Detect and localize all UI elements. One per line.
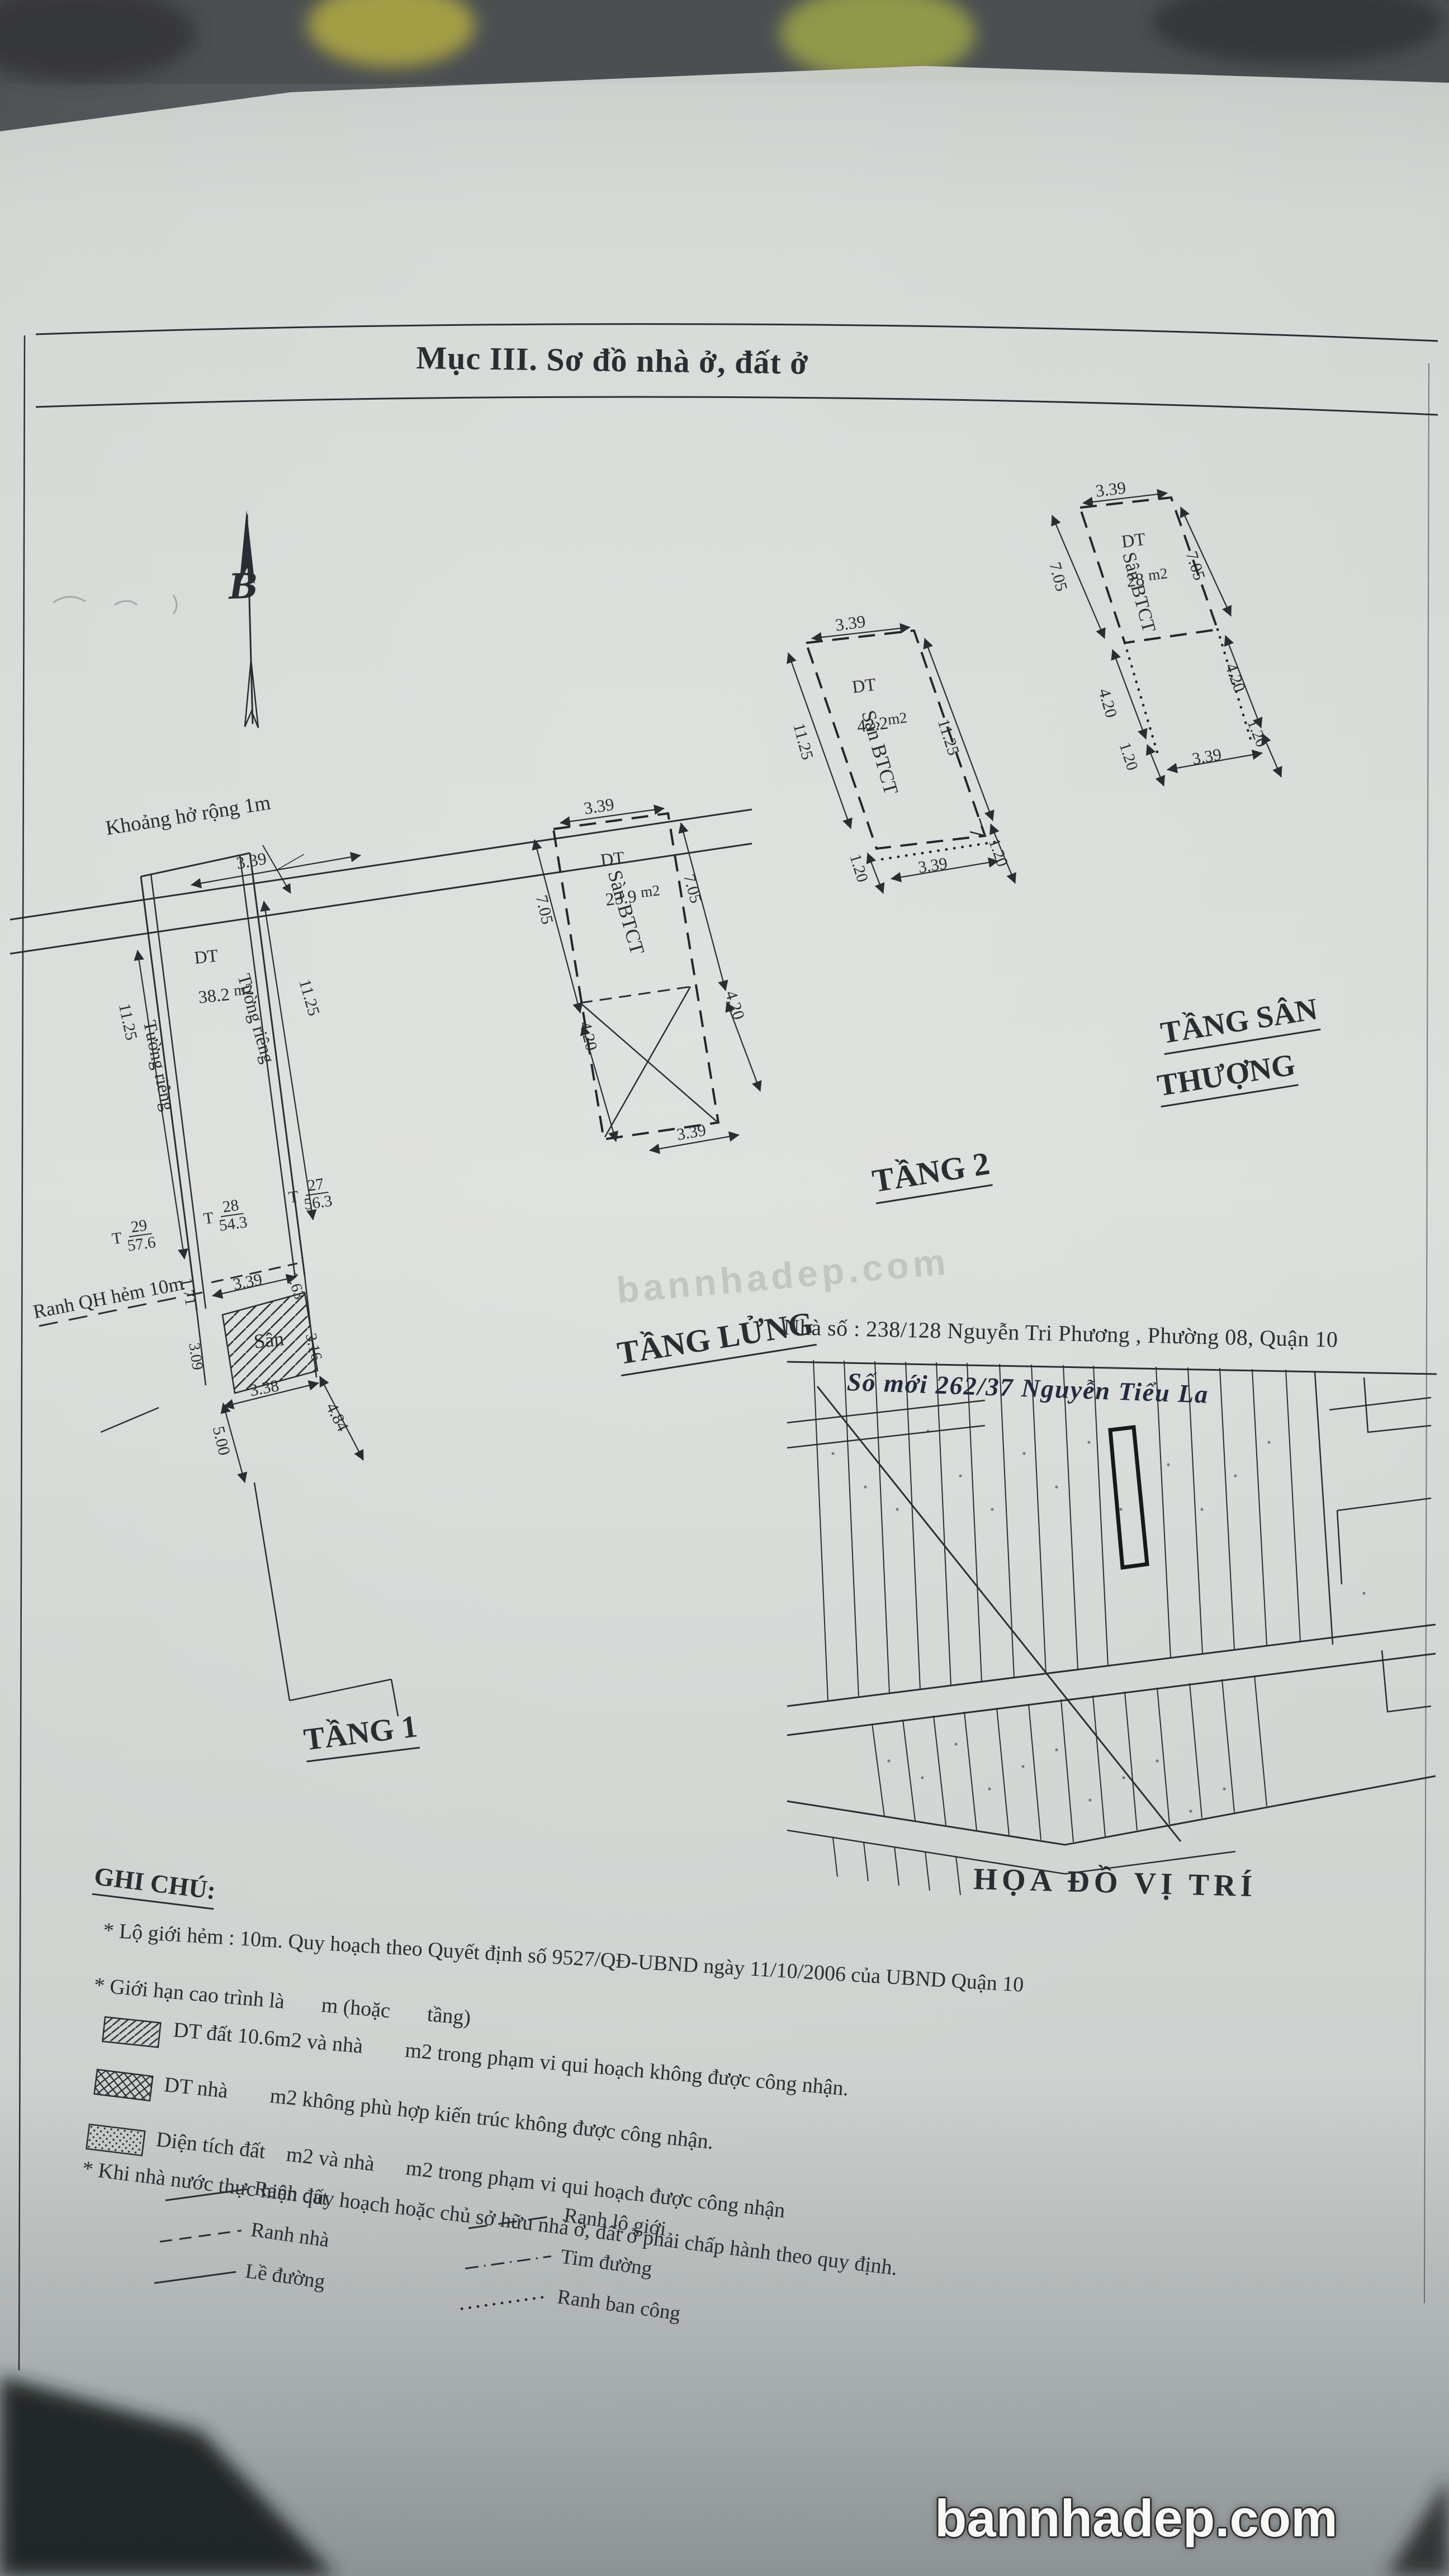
watermark-bottom: bannhadep.com xyxy=(935,2489,1338,2547)
tang1-lot-28: T 2854.3 xyxy=(201,1196,248,1237)
legend-swatch-diagonal xyxy=(102,2017,160,2047)
tst-dim-front: 3.39 xyxy=(1095,478,1127,501)
tang1-lot-27: T 2756.3 xyxy=(286,1175,333,1215)
photographed-document: Mục III. Sơ đồ nhà ở, đất ở B Khoảng hở … xyxy=(0,0,1449,2576)
page-title: Mục III. Sơ đồ nhà ở, đất ở xyxy=(416,340,809,382)
tang1-dim-309: 3.09 xyxy=(185,1342,206,1371)
north-arrow-letter: B xyxy=(228,566,259,606)
tang1-lot-29: T 2957.6 xyxy=(110,1216,157,1257)
tang1-yard-label: Sân xyxy=(253,1327,285,1353)
